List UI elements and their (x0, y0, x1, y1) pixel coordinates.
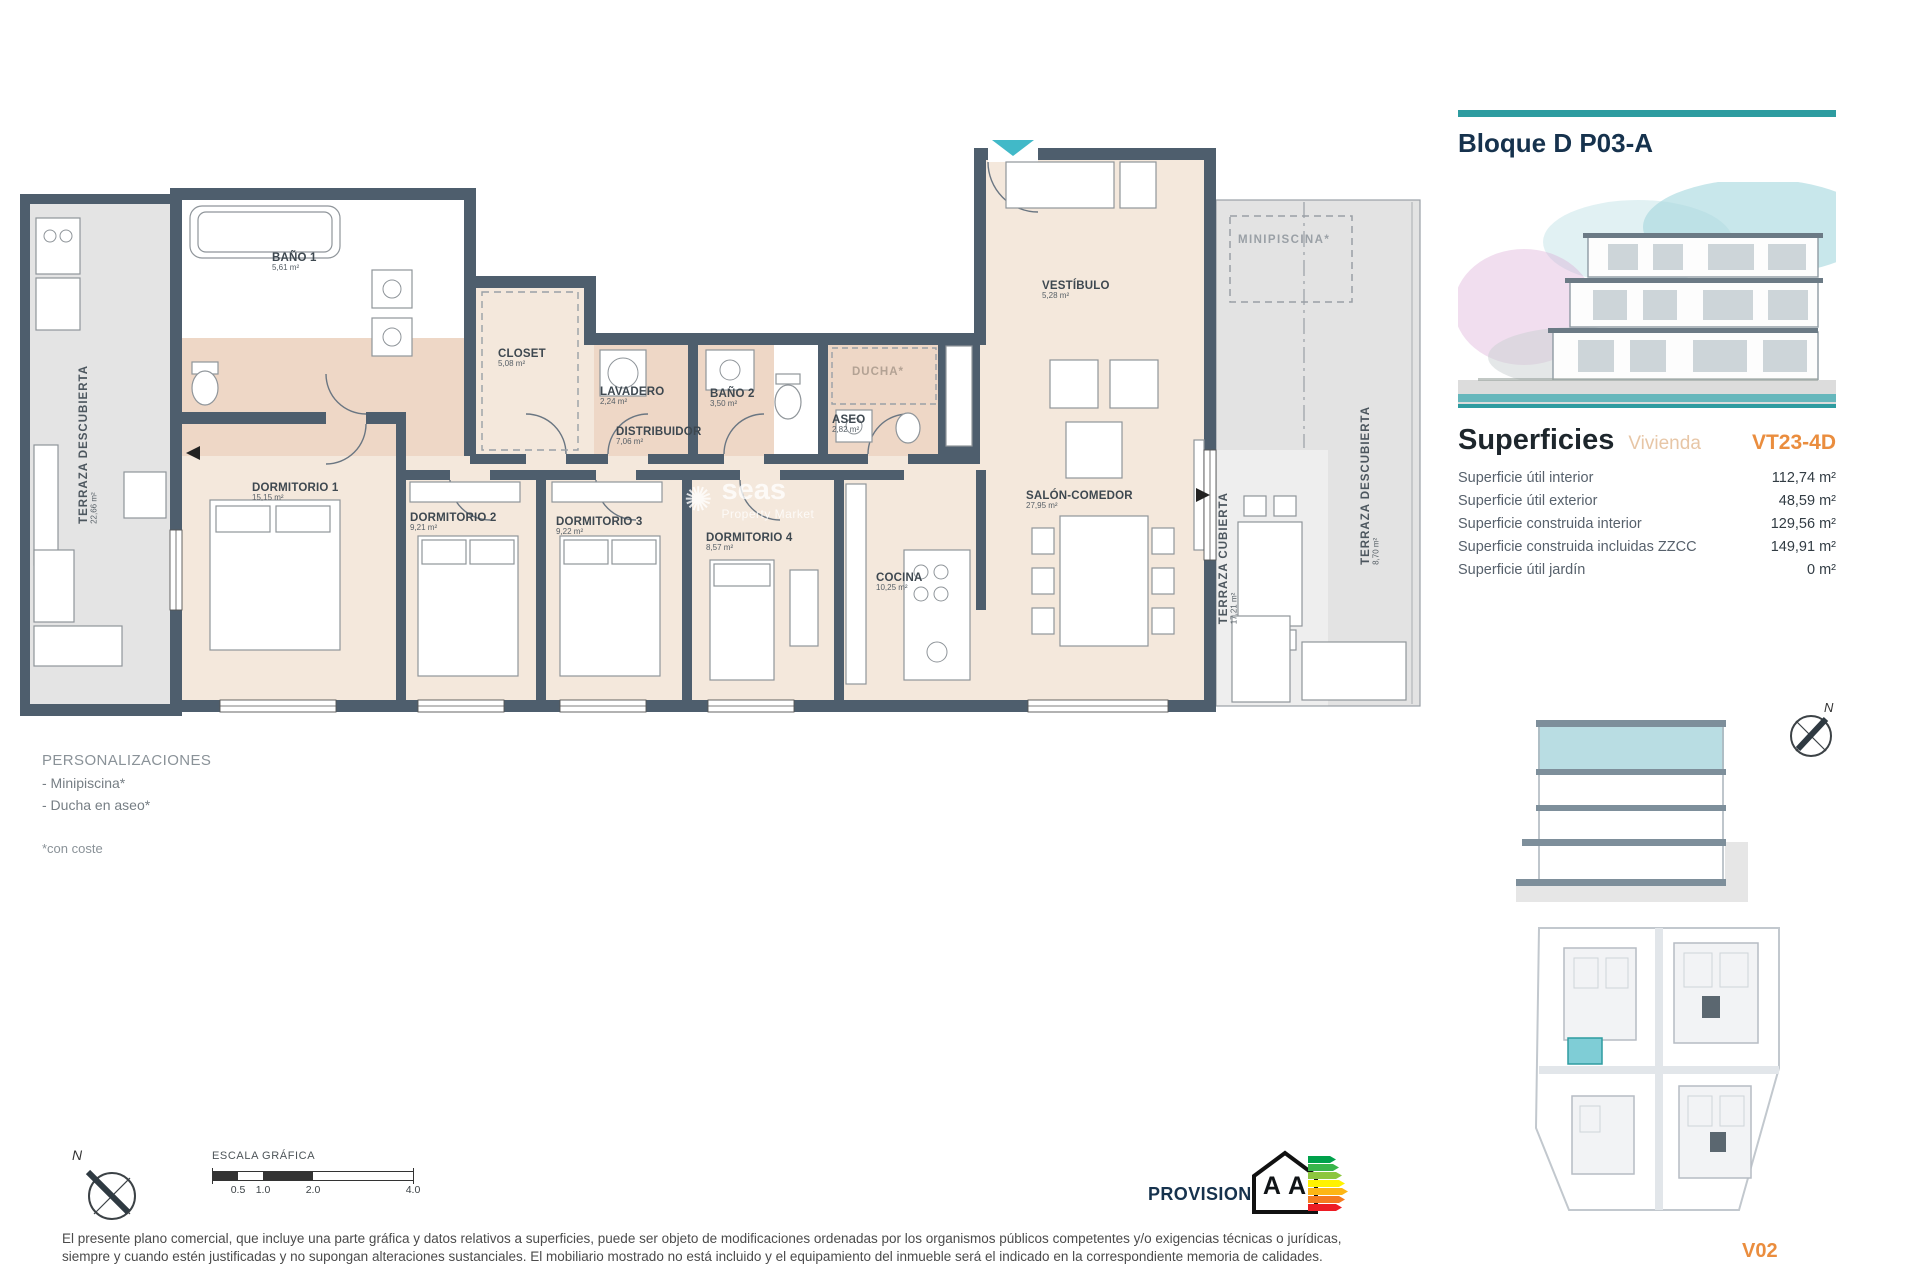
row-label: Superficie útil interior (1458, 470, 1593, 486)
table-row: Superficie construida interior 129,56 m² (1458, 516, 1836, 539)
table-row: Superficie útil interior 112,74 m² (1458, 470, 1836, 493)
room-area: 9,22 m² (556, 528, 643, 537)
personalizations-title: PERSONALIZACIONES (42, 752, 211, 769)
watermark-tagline: Property Market (722, 507, 815, 521)
row-value: 48,59 m² (1779, 493, 1836, 509)
room-area: 8,70 m² (1372, 406, 1381, 565)
room-name: MINIPISCINA* (1238, 234, 1330, 246)
scale-tick-label: 0.5 (231, 1184, 246, 1196)
room-label-distribuidor: DISTRIBUIDOR 7,06 m² (616, 426, 701, 447)
room-area: 9,21 m² (410, 524, 497, 533)
room-label-vestibulo: VESTÍBULO 5,28 m² (1042, 280, 1110, 301)
superficies-table: Superficie útil interior 112,74 m² Super… (1458, 470, 1836, 585)
building-section-diagram (1516, 702, 1748, 907)
site-plan (1524, 918, 1796, 1225)
room-name: DORMITORIO 3 (556, 516, 643, 528)
room-name: TERRAZA CUBIERTA (1218, 492, 1230, 624)
floor-plan: TERRAZA DESCUBIERTA 22,66 m² BAÑO 1 5,61… (20, 140, 1430, 720)
room-name: LAVADERO (600, 386, 664, 398)
room-area: 5,61 m² (272, 264, 317, 273)
room-label-minipiscina: MINIPISCINA* (1238, 234, 1330, 246)
energy-rating-logo: A A (1246, 1146, 1350, 1220)
room-area: 5,08 m² (498, 360, 546, 369)
watermark-name: seas (722, 474, 787, 506)
room-label-terraza-cubierta: TERRAZA CUBIERTA 17,21 m² (1218, 492, 1239, 624)
watermark-sun-icon: ✺ (684, 483, 713, 517)
room-area: 15,15 m² (252, 494, 339, 503)
room-label-salon-comedor: SALÓN-COMEDOR 27,95 m² (1026, 490, 1133, 511)
room-name: TERRAZA DESCUBIERTA (1360, 406, 1372, 565)
room-label-bano-1: BAÑO 1 5,61 m² (272, 252, 317, 273)
room-label-lavadero: LAVADERO 2,24 m² (600, 386, 664, 407)
floor-plan-graphic (20, 140, 1430, 720)
unit-code: VT23-4D (1752, 431, 1836, 455)
room-label-terraza-descubierta-left: TERRAZA DESCUBIERTA 22,66 m² (78, 365, 99, 524)
room-name: TERRAZA DESCUBIERTA (78, 365, 90, 524)
room-label-dormitorio-4: DORMITORIO 4 8,57 m² (706, 532, 793, 553)
compass-rose: N (1784, 698, 1844, 769)
room-area: 8,57 m² (706, 544, 793, 553)
row-value: 149,91 m² (1771, 539, 1836, 555)
version-label: V02 (1742, 1240, 1778, 1263)
room-area: 2,24 m² (600, 398, 664, 407)
personalizations-item: - Minipiscina* (42, 775, 211, 791)
room-name: BAÑO 1 (272, 252, 317, 264)
room-name: DORMITORIO 1 (252, 482, 339, 494)
room-name: ASEO (832, 414, 865, 426)
room-area: 17,21 m² (1230, 492, 1239, 624)
room-name: CLOSET (498, 348, 546, 360)
room-area: 10,25 m² (876, 584, 923, 593)
row-value: 112,74 m² (1772, 470, 1836, 486)
table-row: Superficie útil exterior 48,59 m² (1458, 493, 1836, 516)
graphic-scale: ESCALA GRÁFICA 0.5 1.0 2.0 4.0 (212, 1150, 452, 1181)
superficies-header: Superficies Vivienda VT23-4D (1458, 424, 1836, 457)
legal-disclaimer: El presente plano comercial, que incluye… (62, 1230, 1357, 1266)
room-label-dormitorio-3: DORMITORIO 3 9,22 m² (556, 516, 643, 537)
scale-title: ESCALA GRÁFICA (212, 1150, 452, 1162)
room-area: 7,06 m² (616, 438, 701, 447)
room-area: 5,28 m² (1042, 292, 1110, 301)
room-name: SALÓN-COMEDOR (1026, 490, 1133, 502)
cost-note: *con coste (42, 841, 211, 856)
room-name: DISTRIBUIDOR (616, 426, 701, 438)
room-label-terraza-descubierta-right: TERRAZA DESCUBIERTA 8,70 m² (1360, 406, 1381, 565)
energy-letters: A A (1256, 1172, 1314, 1201)
room-name: DORMITORIO 2 (410, 512, 497, 524)
personalizations-item: - Ducha en aseo* (42, 797, 211, 813)
room-label-ducha: DUCHA* (852, 366, 904, 378)
room-label-closet: CLOSET 5,08 m² (498, 348, 546, 369)
room-label-dormitorio-1: DORMITORIO 1 15,15 m² (252, 482, 339, 503)
north-label: N (1824, 700, 1834, 715)
table-row: Superficie útil jardín 0 m² (1458, 562, 1836, 585)
building-render (1458, 182, 1836, 410)
room-name: DUCHA* (852, 366, 904, 378)
room-label-cocina: COCINA 10,25 m² (876, 572, 923, 593)
table-row: Superficie construida incluidas ZZCC 149… (1458, 539, 1836, 562)
compass-rose: N (66, 1144, 146, 1241)
room-area: 22,66 m² (90, 365, 99, 524)
north-label: N (72, 1147, 83, 1163)
room-name: DORMITORIO 4 (706, 532, 793, 544)
plan-sheet: { "plan": { "rooms": [ {"name": "TERRAZA… (0, 0, 1920, 1280)
scale-tick-label: 4.0 (406, 1184, 421, 1196)
row-label: Superficie útil jardín (1458, 562, 1585, 578)
accent-bar (1458, 110, 1836, 117)
room-label-dormitorio-2: DORMITORIO 2 9,21 m² (410, 512, 497, 533)
room-name: COCINA (876, 572, 923, 584)
personalizations-note: PERSONALIZACIONES - Minipiscina* - Ducha… (42, 752, 211, 856)
row-value: 129,56 m² (1771, 516, 1836, 532)
row-value: 0 m² (1807, 562, 1836, 578)
scale-bar: 0.5 1.0 2.0 4.0 (212, 1171, 414, 1181)
room-area: 3,50 m² (710, 400, 755, 409)
room-label-bano-2: BAÑO 2 3,50 m² (710, 388, 755, 409)
room-name: VESTÍBULO (1042, 280, 1110, 292)
superficies-subtitle: Vivienda (1628, 433, 1701, 455)
block-title: Bloque D P03-A (1458, 128, 1653, 159)
scale-tick-label: 2.0 (306, 1184, 321, 1196)
room-name: BAÑO 2 (710, 388, 755, 400)
row-label: Superficie construida incluidas ZZCC (1458, 539, 1697, 555)
watermark: ✺ seas Property Market (684, 476, 814, 523)
scale-tick-label: 1.0 (256, 1184, 271, 1196)
room-area: 27,95 m² (1026, 502, 1133, 511)
row-label: Superficie construida interior (1458, 516, 1642, 532)
superficies-title: Superficies (1458, 424, 1614, 457)
row-label: Superficie útil exterior (1458, 493, 1597, 509)
room-label-aseo: ASEO 2,82 m² (832, 414, 865, 435)
room-area: 2,82 m² (832, 426, 865, 435)
